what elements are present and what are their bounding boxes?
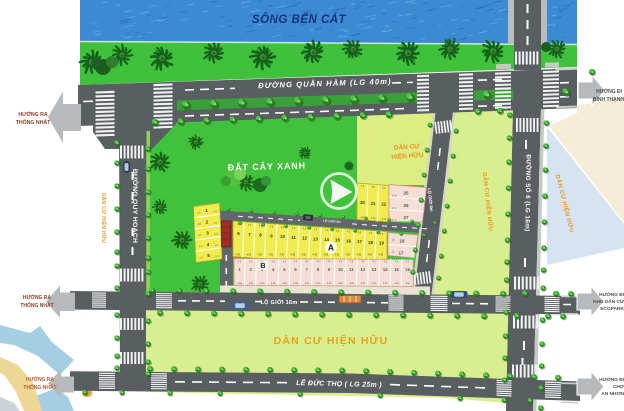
svg-text:LỘ GIỚI 16m: LỘ GIỚI 16m bbox=[260, 298, 297, 306]
svg-text:12: 12 bbox=[360, 267, 365, 272]
svg-text:12: 12 bbox=[302, 236, 307, 241]
svg-text:4.50: 4.50 bbox=[304, 282, 309, 285]
svg-text:4.50: 4.50 bbox=[405, 282, 410, 285]
svg-text:4.50: 4.50 bbox=[257, 254, 262, 257]
svg-text:THỐNG NHẤT: THỐNG NHẤT bbox=[20, 302, 53, 309]
svg-text:10: 10 bbox=[280, 234, 285, 239]
svg-text:4.50: 4.50 bbox=[383, 282, 388, 285]
svg-text:3: 3 bbox=[206, 231, 209, 236]
svg-text:KHU DÂN CƯ: KHU DÂN CƯ bbox=[593, 298, 624, 305]
svg-text:4.50: 4.50 bbox=[235, 254, 240, 257]
svg-text:15: 15 bbox=[394, 267, 399, 272]
svg-text:4.50: 4.50 bbox=[394, 282, 399, 285]
svg-text:4.50: 4.50 bbox=[290, 254, 295, 257]
svg-text:25: 25 bbox=[403, 191, 409, 196]
svg-text:15: 15 bbox=[335, 238, 340, 243]
svg-text:26: 26 bbox=[403, 203, 409, 208]
svg-text:18: 18 bbox=[399, 239, 405, 244]
svg-text:17: 17 bbox=[357, 239, 362, 244]
svg-text:4.50: 4.50 bbox=[327, 282, 332, 285]
svg-text:4.50: 4.50 bbox=[378, 254, 383, 257]
svg-text:4.50: 4.50 bbox=[248, 282, 253, 285]
svg-text:4.50: 4.50 bbox=[260, 282, 265, 285]
svg-text:ĐẤT CÂY XANH: ĐẤT CÂY XANH bbox=[228, 159, 307, 172]
svg-text:SÔNG BẾN CÁT: SÔNG BẾN CÁT bbox=[252, 13, 347, 26]
svg-text:4.50: 4.50 bbox=[312, 254, 317, 257]
svg-text:DÂN CƯ HIỆN HỮU: DÂN CƯ HIỆN HỮU bbox=[274, 334, 389, 347]
svg-text:THỐNG NHẤT: THỐNG NHẤT bbox=[16, 119, 51, 126]
svg-text:A: A bbox=[328, 243, 334, 253]
svg-text:11: 11 bbox=[349, 267, 354, 272]
svg-text:4.50: 4.50 bbox=[293, 282, 298, 285]
svg-text:13: 13 bbox=[372, 267, 377, 272]
svg-text:4.50: 4.50 bbox=[316, 282, 321, 285]
svg-text:HƯỚNG RA: HƯỚNG RA bbox=[23, 293, 52, 301]
svg-text:11: 11 bbox=[291, 235, 296, 240]
svg-text:4.50: 4.50 bbox=[349, 282, 354, 285]
svg-text:10: 10 bbox=[338, 267, 343, 272]
svg-text:4.50: 4.50 bbox=[334, 254, 339, 257]
svg-text:4.50: 4.50 bbox=[301, 254, 306, 257]
svg-text:HƯỚNG ĐI: HƯỚNG ĐI bbox=[596, 87, 623, 95]
svg-text:4: 4 bbox=[207, 242, 210, 247]
svg-text:18: 18 bbox=[368, 240, 373, 245]
svg-text:4.50: 4.50 bbox=[367, 254, 372, 257]
svg-text:THỐNG NHẤT: THỐNG NHẤT bbox=[23, 384, 56, 391]
svg-text:4.50: 4.50 bbox=[282, 282, 287, 285]
svg-text:BÌNH THẠNH: BÌNH THẠNH bbox=[593, 95, 624, 103]
svg-text:14: 14 bbox=[383, 267, 388, 272]
svg-text:HƯỚNG RA: HƯỚNG RA bbox=[18, 110, 47, 118]
svg-text:1: 1 bbox=[205, 208, 208, 213]
svg-text:4.50: 4.50 bbox=[268, 254, 273, 257]
svg-text:4.50: 4.50 bbox=[356, 254, 361, 257]
svg-text:ECOPARK: ECOPARK bbox=[600, 306, 624, 312]
svg-text:AN NHƠN: AN NHƠN bbox=[601, 391, 624, 397]
svg-text:13: 13 bbox=[313, 236, 318, 241]
svg-text:16: 16 bbox=[346, 239, 351, 244]
svg-text:21: 21 bbox=[371, 201, 376, 206]
svg-text:27: 27 bbox=[403, 215, 409, 220]
svg-text:4.50: 4.50 bbox=[338, 282, 343, 285]
svg-text:CHỢ: CHỢ bbox=[613, 384, 624, 390]
svg-text:4.50: 4.50 bbox=[246, 254, 251, 257]
svg-text:4.50: 4.50 bbox=[360, 282, 365, 285]
svg-text:22: 22 bbox=[381, 202, 386, 207]
svg-text:17: 17 bbox=[398, 251, 404, 256]
svg-text:4.50: 4.50 bbox=[237, 282, 242, 285]
svg-text:4.50: 4.50 bbox=[279, 254, 284, 257]
svg-text:2: 2 bbox=[206, 219, 209, 224]
svg-text:4.50: 4.50 bbox=[271, 282, 276, 285]
svg-text:20: 20 bbox=[360, 200, 365, 205]
svg-text:5: 5 bbox=[207, 253, 210, 258]
svg-text:4.50: 4.50 bbox=[323, 254, 328, 257]
svg-text:DÂN CƯ HIỆN HỮU: DÂN CƯ HIỆN HỮU bbox=[100, 193, 108, 244]
svg-text:14: 14 bbox=[324, 237, 329, 242]
svg-text:HƯỚNG RA: HƯỚNG RA bbox=[26, 375, 55, 383]
svg-text:19: 19 bbox=[379, 241, 384, 246]
svg-text:16: 16 bbox=[405, 267, 410, 272]
svg-text:4.50: 4.50 bbox=[345, 254, 350, 257]
svg-text:4.50: 4.50 bbox=[372, 282, 377, 285]
svg-text:ĐƯỜNG QUY HOẠCH: ĐƯỜNG QUY HOẠCH bbox=[131, 169, 140, 243]
